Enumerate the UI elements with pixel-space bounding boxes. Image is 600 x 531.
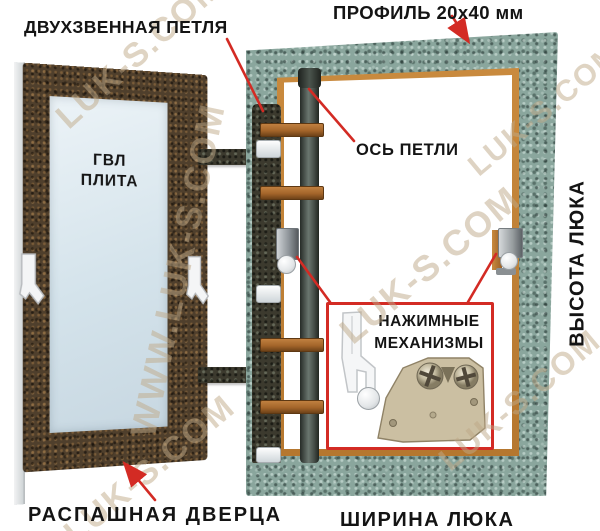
plastic-cap	[256, 140, 281, 158]
hinge-link	[260, 400, 324, 414]
label-profile-20x40: ПРОФИЛЬ 20х40 мм	[333, 2, 524, 24]
label-push-mech-line2: МЕХАНИЗМЫ	[369, 333, 489, 355]
label-push-mech-line1: НАЖИМНЫЕ	[369, 311, 489, 333]
push-latch-striker-icon	[16, 252, 45, 312]
gvl-panel: ГВЛ ПЛИТА	[50, 96, 168, 433]
label-push-mechanisms: НАЖИМНЫЕ МЕХАНИЗМЫ	[369, 311, 489, 355]
push-latch-mechanism-icon	[373, 355, 488, 444]
label-hatch-width: ШИРИНА ЛЮКА	[340, 509, 514, 531]
roller-wheel	[500, 252, 518, 270]
annotated-product-photo: ГВЛ ПЛИТА	[0, 0, 600, 531]
hinge-link	[260, 186, 324, 200]
push-latch-striker-icon	[183, 255, 209, 312]
label-gvl-line2: ПЛИТА	[50, 168, 168, 192]
label-gvl-plate: ГВЛ ПЛИТА	[50, 147, 168, 192]
push-mechanisms-callout: НАЖИМНЫЕ МЕХАНИЗМЫ	[326, 302, 494, 450]
plastic-cap	[256, 447, 281, 463]
hinge-link	[260, 338, 324, 352]
hinge-link	[260, 123, 324, 137]
hinge-axis-cap	[298, 68, 321, 88]
plastic-cap	[256, 285, 281, 303]
label-swing-door: РАСПАШНАЯ ДВЕРЦА	[28, 504, 282, 527]
leader-swing-door-arrow	[125, 464, 155, 500]
label-hatch-height: ВЫСОТА ЛЮКА	[567, 169, 590, 359]
label-hinge-axis: ОСЬ ПЕТЛИ	[356, 141, 459, 160]
door-assembly: ГВЛ ПЛИТА	[14, 62, 207, 473]
roller-wheel	[277, 255, 296, 274]
door-frame: ГВЛ ПЛИТА	[23, 63, 208, 473]
label-double-link-hinge: ДВУХЗВЕННАЯ ПЕТЛЯ	[24, 17, 228, 38]
